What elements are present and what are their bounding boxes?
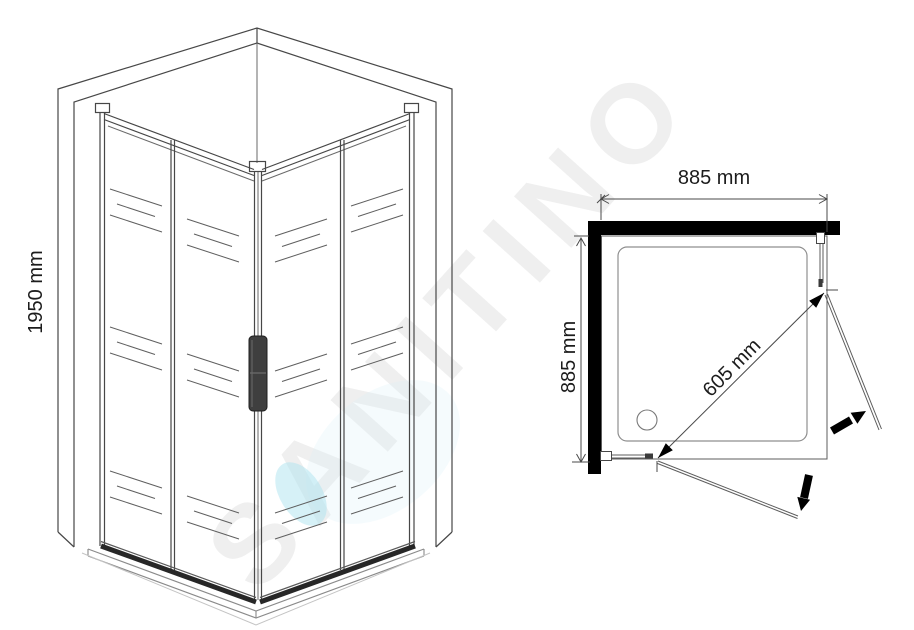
plan-view: 885 mm 885 mm 605 mm — [558, 167, 882, 519]
plan-shower-tray — [618, 247, 807, 441]
left-wall-post — [100, 113, 105, 547]
plan-wall-top — [588, 221, 840, 235]
technical-drawing-canvas: SANITINO — [0, 0, 914, 630]
drain-circle — [637, 410, 657, 430]
plan-wall-left — [588, 221, 601, 474]
watermark-drop-icon — [265, 351, 488, 553]
top-rail-right — [262, 114, 410, 176]
width-dimension-label: 885 mm — [678, 167, 750, 189]
shower-enclosure-drawing: 1950 mm — [0, 0, 914, 630]
opening-dimension-label: 605 mm — [699, 335, 766, 402]
plan-walls — [588, 221, 840, 474]
door-panels — [601, 233, 825, 461]
door-open-lines — [658, 294, 882, 519]
left-door-divider — [171, 140, 175, 570]
right-post-cap — [405, 104, 419, 113]
isometric-view: 1950 mm — [25, 28, 452, 625]
depth-dimension-label: 885 mm — [558, 321, 580, 393]
door-slide-arrow-right — [832, 411, 866, 431]
height-dimension-label: 1950 mm — [25, 250, 47, 333]
enclosure-frame — [96, 104, 419, 603]
opening-dimension: 605 mm — [657, 290, 838, 472]
left-post-cap — [96, 104, 110, 113]
right-wall-profile — [817, 233, 825, 244]
depth-dimension: 885 mm — [558, 236, 590, 462]
bottom-wall-profile — [601, 452, 612, 461]
door-slide-arrows — [797, 411, 866, 511]
bottom-door-closed — [608, 455, 650, 458]
top-rail-left — [104, 114, 254, 176]
enclosure-footprint — [602, 236, 828, 459]
bottom-door-open — [658, 461, 799, 519]
right-door-closed — [820, 243, 823, 283]
right-door-open — [825, 294, 882, 430]
door-handle — [249, 336, 267, 411]
door-slide-arrow-bottom — [797, 475, 810, 511]
